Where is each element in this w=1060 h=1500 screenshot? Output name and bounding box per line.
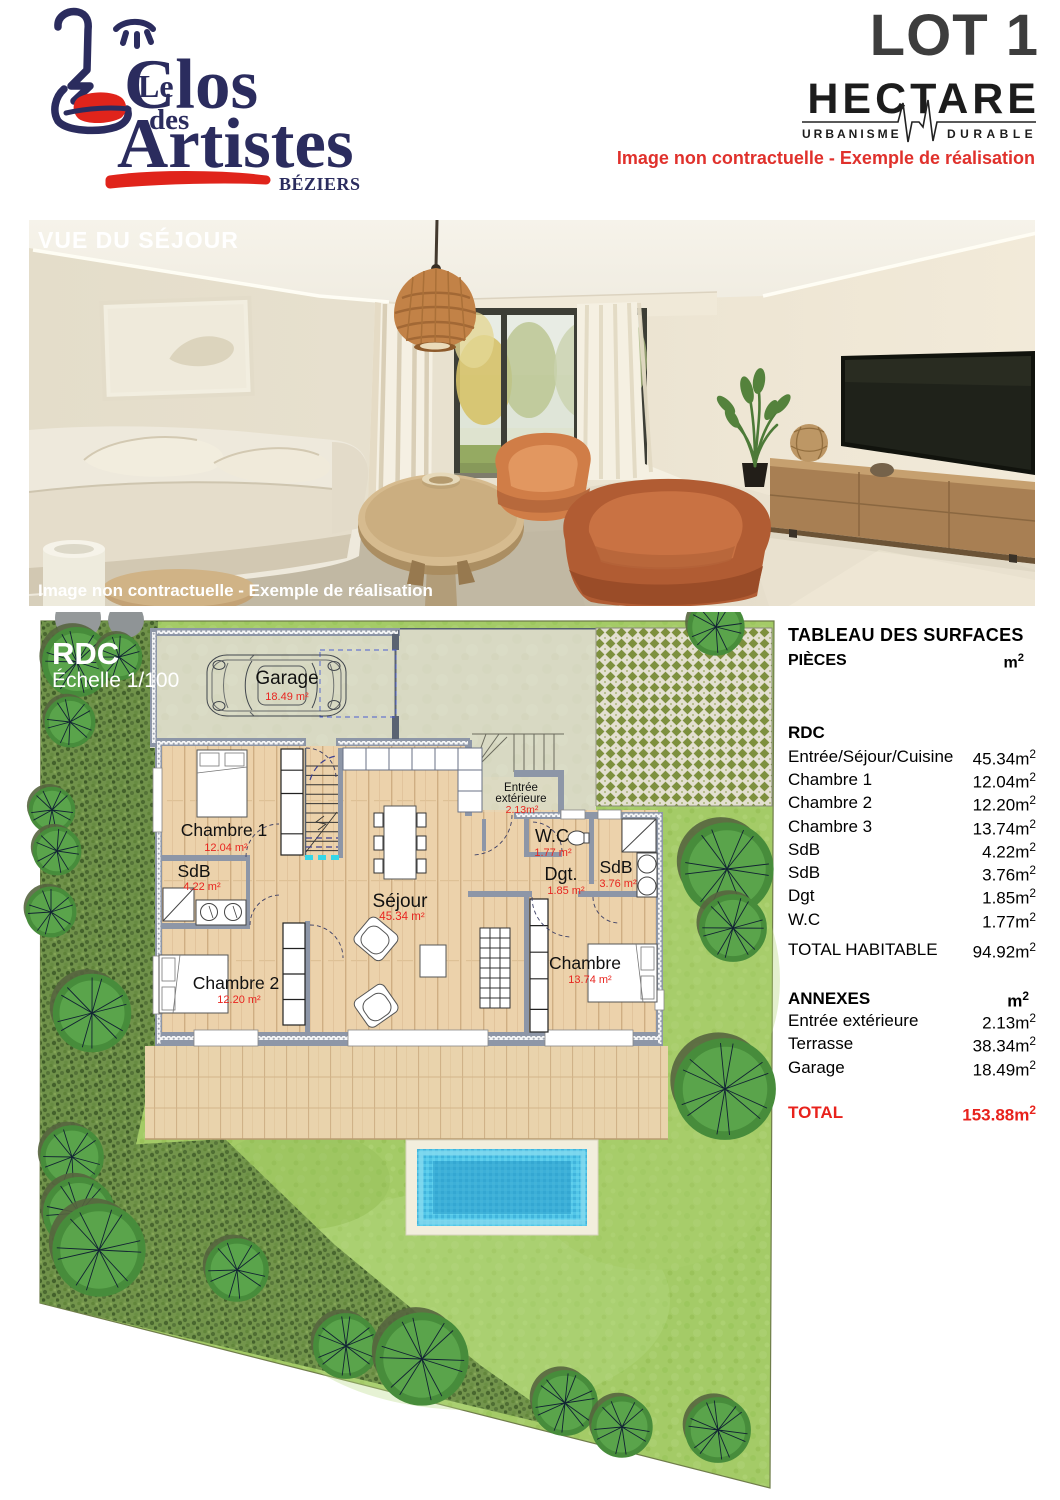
svg-text:2.13m²: 2.13m² bbox=[506, 804, 539, 816]
svg-text:SdB: SdB bbox=[599, 857, 632, 877]
svg-text:Dgt.: Dgt. bbox=[544, 864, 577, 884]
svg-text:Chambre: Chambre bbox=[549, 953, 621, 973]
svg-text:1.85 m²: 1.85 m² bbox=[547, 885, 585, 897]
svg-text:3.76 m²: 3.76 m² bbox=[599, 878, 637, 890]
svg-text:BÉZIERS: BÉZIERS bbox=[279, 173, 361, 194]
svg-text:1.77 m²: 1.77 m² bbox=[534, 847, 572, 859]
svg-text:Artistes: Artistes bbox=[117, 105, 354, 183]
svg-text:13.74 m²: 13.74 m² bbox=[568, 974, 612, 986]
svg-text:45.34 m²: 45.34 m² bbox=[379, 911, 425, 923]
svg-text:W.C: W.C bbox=[535, 826, 569, 846]
svg-text:Chambre 2: Chambre 2 bbox=[193, 973, 280, 993]
svg-text:12.20 m²: 12.20 m² bbox=[217, 994, 261, 1006]
svg-text:Séjour: Séjour bbox=[373, 891, 429, 912]
svg-text:Chambre 1: Chambre 1 bbox=[181, 820, 268, 840]
svg-text:4.22 m²: 4.22 m² bbox=[183, 881, 221, 893]
svg-text:12.04 m²: 12.04 m² bbox=[204, 842, 248, 854]
svg-text:SdB: SdB bbox=[177, 861, 210, 881]
svg-text:Garage: Garage bbox=[255, 668, 318, 689]
svg-text:18.49 m²: 18.49 m² bbox=[265, 691, 309, 703]
